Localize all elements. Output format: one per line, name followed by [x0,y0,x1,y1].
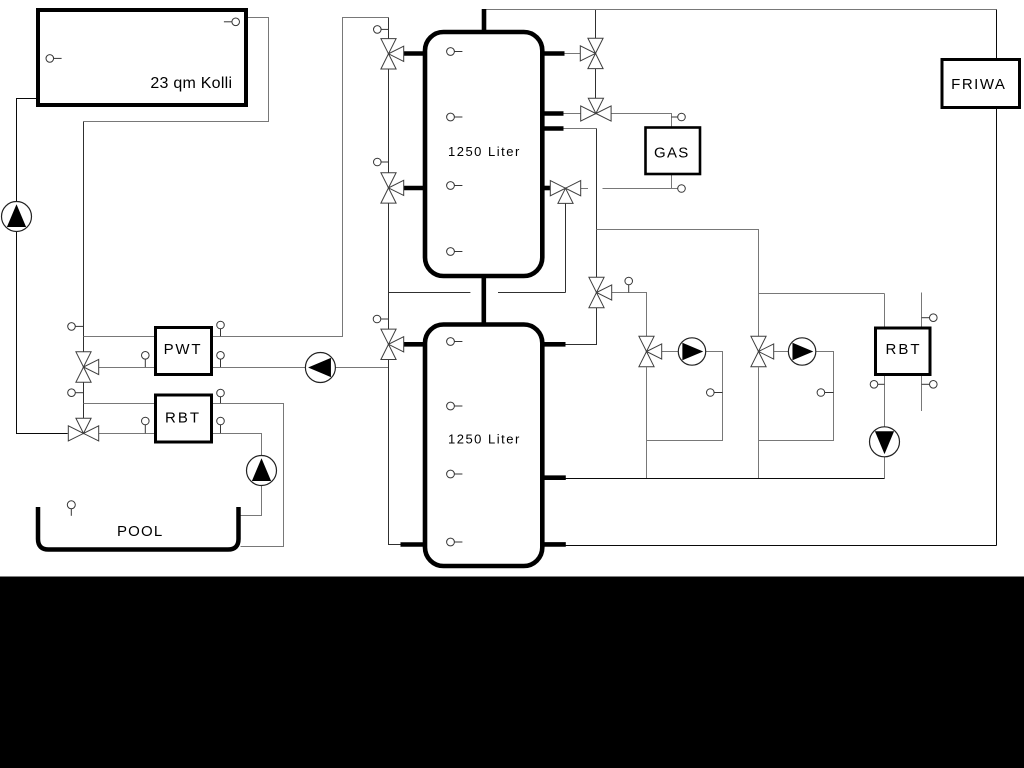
svg-text:1250 Liter: 1250 Liter [448,144,521,159]
svg-text:RBT: RBT [165,410,201,427]
svg-text:23 qm Kolli: 23 qm Kolli [150,75,232,92]
svg-text:GAS: GAS [654,144,690,161]
svg-text:RBT: RBT [886,341,922,358]
svg-text:POOL: POOL [117,523,163,540]
svg-text:PWT: PWT [164,341,203,358]
svg-text:1250 Liter: 1250 Liter [448,432,521,447]
svg-text:FRIWA: FRIWA [951,76,1006,93]
